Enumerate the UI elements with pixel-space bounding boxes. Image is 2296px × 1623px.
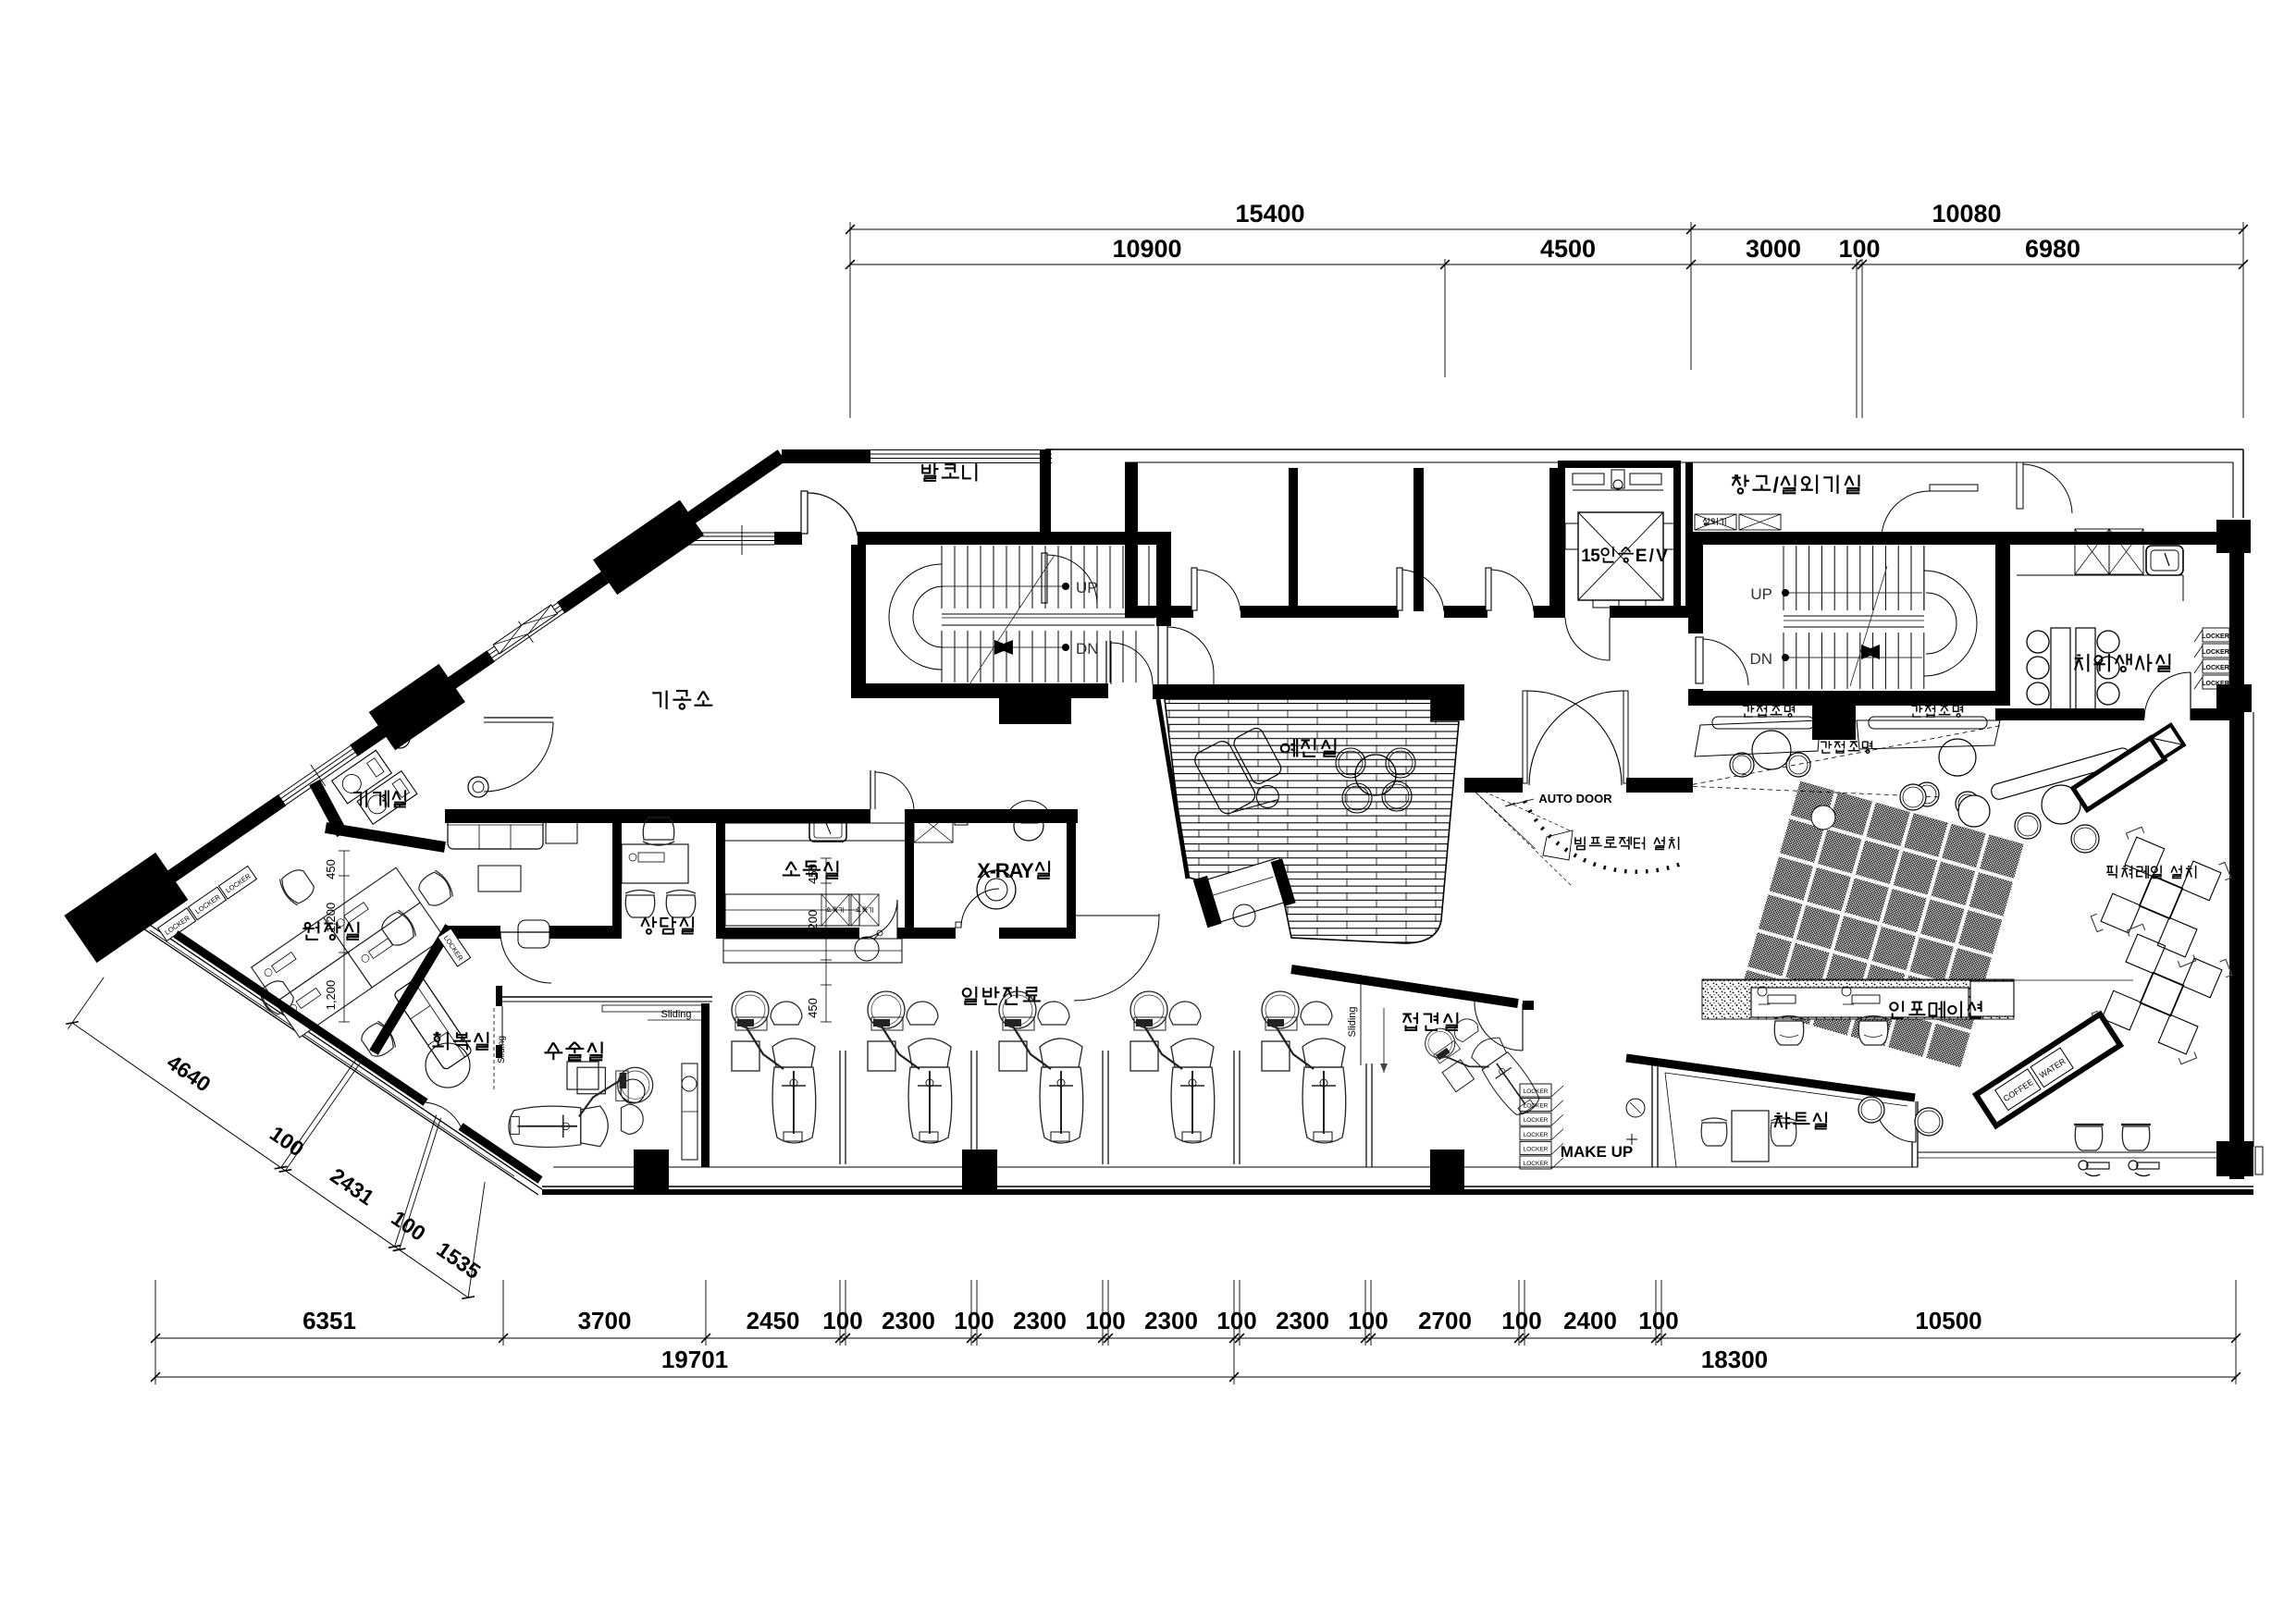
svg-text:E/V: E/V bbox=[1636, 547, 1668, 566]
svg-text:DN: DN bbox=[1076, 640, 1099, 658]
svg-text:15: 15 bbox=[1581, 547, 1600, 566]
svg-text:AUTO DOOR: AUTO DOOR bbox=[1538, 792, 1612, 805]
svg-text:2300: 2300 bbox=[1276, 1307, 1329, 1334]
svg-text:100: 100 bbox=[1348, 1307, 1388, 1334]
svg-text:2400: 2400 bbox=[1563, 1307, 1617, 1334]
svg-text:1,200: 1,200 bbox=[324, 980, 338, 1011]
svg-text:LOCKER: LOCKER bbox=[2202, 633, 2229, 640]
svg-text:Sliding: Sliding bbox=[1347, 1006, 1358, 1037]
svg-text:MAKE UP: MAKE UP bbox=[1561, 1143, 1633, 1161]
svg-text:100: 100 bbox=[1501, 1307, 1541, 1334]
svg-text:1,200: 1,200 bbox=[806, 910, 820, 941]
svg-text:100: 100 bbox=[1638, 1307, 1678, 1334]
svg-text:450: 450 bbox=[806, 864, 820, 884]
svg-text:2700: 2700 bbox=[1418, 1307, 1472, 1334]
svg-text:LOCKER: LOCKER bbox=[1524, 1146, 1549, 1152]
svg-text:100: 100 bbox=[822, 1307, 862, 1334]
svg-text:UP: UP bbox=[1076, 579, 1098, 596]
svg-text:2450: 2450 bbox=[747, 1307, 800, 1334]
svg-text:1,200: 1,200 bbox=[324, 903, 338, 933]
svg-text:LOCKER: LOCKER bbox=[1524, 1103, 1549, 1110]
svg-text:Sliding: Sliding bbox=[660, 1009, 691, 1020]
svg-text:6980: 6980 bbox=[2025, 235, 2080, 263]
svg-text:UP: UP bbox=[1750, 585, 1772, 603]
svg-text:450: 450 bbox=[806, 998, 820, 1018]
svg-text:10500: 10500 bbox=[1915, 1307, 1981, 1334]
svg-text:LOCKER: LOCKER bbox=[1524, 1117, 1549, 1124]
svg-text:4500: 4500 bbox=[1540, 235, 1596, 263]
svg-text:3000: 3000 bbox=[1746, 235, 1801, 263]
svg-text:LOCKER: LOCKER bbox=[2202, 665, 2229, 671]
svg-text:3700: 3700 bbox=[578, 1307, 632, 1334]
svg-text:15400: 15400 bbox=[1235, 200, 1304, 227]
svg-text:LOCKER: LOCKER bbox=[1524, 1132, 1549, 1138]
svg-text:LOCKER: LOCKER bbox=[1524, 1088, 1549, 1095]
svg-text:450: 450 bbox=[324, 859, 338, 879]
svg-text:X-RAY: X-RAY bbox=[977, 859, 1034, 882]
svg-text:100: 100 bbox=[1838, 235, 1880, 263]
svg-text:2300: 2300 bbox=[882, 1307, 935, 1334]
svg-text:18300: 18300 bbox=[1701, 1346, 1768, 1373]
svg-text:19701: 19701 bbox=[661, 1346, 728, 1373]
svg-text:100: 100 bbox=[1085, 1307, 1125, 1334]
svg-text:LOCKER: LOCKER bbox=[2202, 649, 2229, 656]
svg-text:/: / bbox=[1773, 473, 1780, 497]
svg-text:LOCKER: LOCKER bbox=[1524, 1161, 1549, 1167]
svg-text:100: 100 bbox=[1216, 1307, 1256, 1334]
svg-text:2300: 2300 bbox=[1144, 1307, 1198, 1334]
svg-text:DN: DN bbox=[1749, 650, 1772, 668]
svg-text:Sliding: Sliding bbox=[497, 1036, 507, 1064]
svg-text:10080: 10080 bbox=[1932, 200, 2001, 227]
svg-text:2300: 2300 bbox=[1013, 1307, 1067, 1334]
svg-text:6351: 6351 bbox=[302, 1307, 356, 1334]
svg-text:10900: 10900 bbox=[1112, 235, 1181, 263]
svg-text:100: 100 bbox=[954, 1307, 994, 1334]
